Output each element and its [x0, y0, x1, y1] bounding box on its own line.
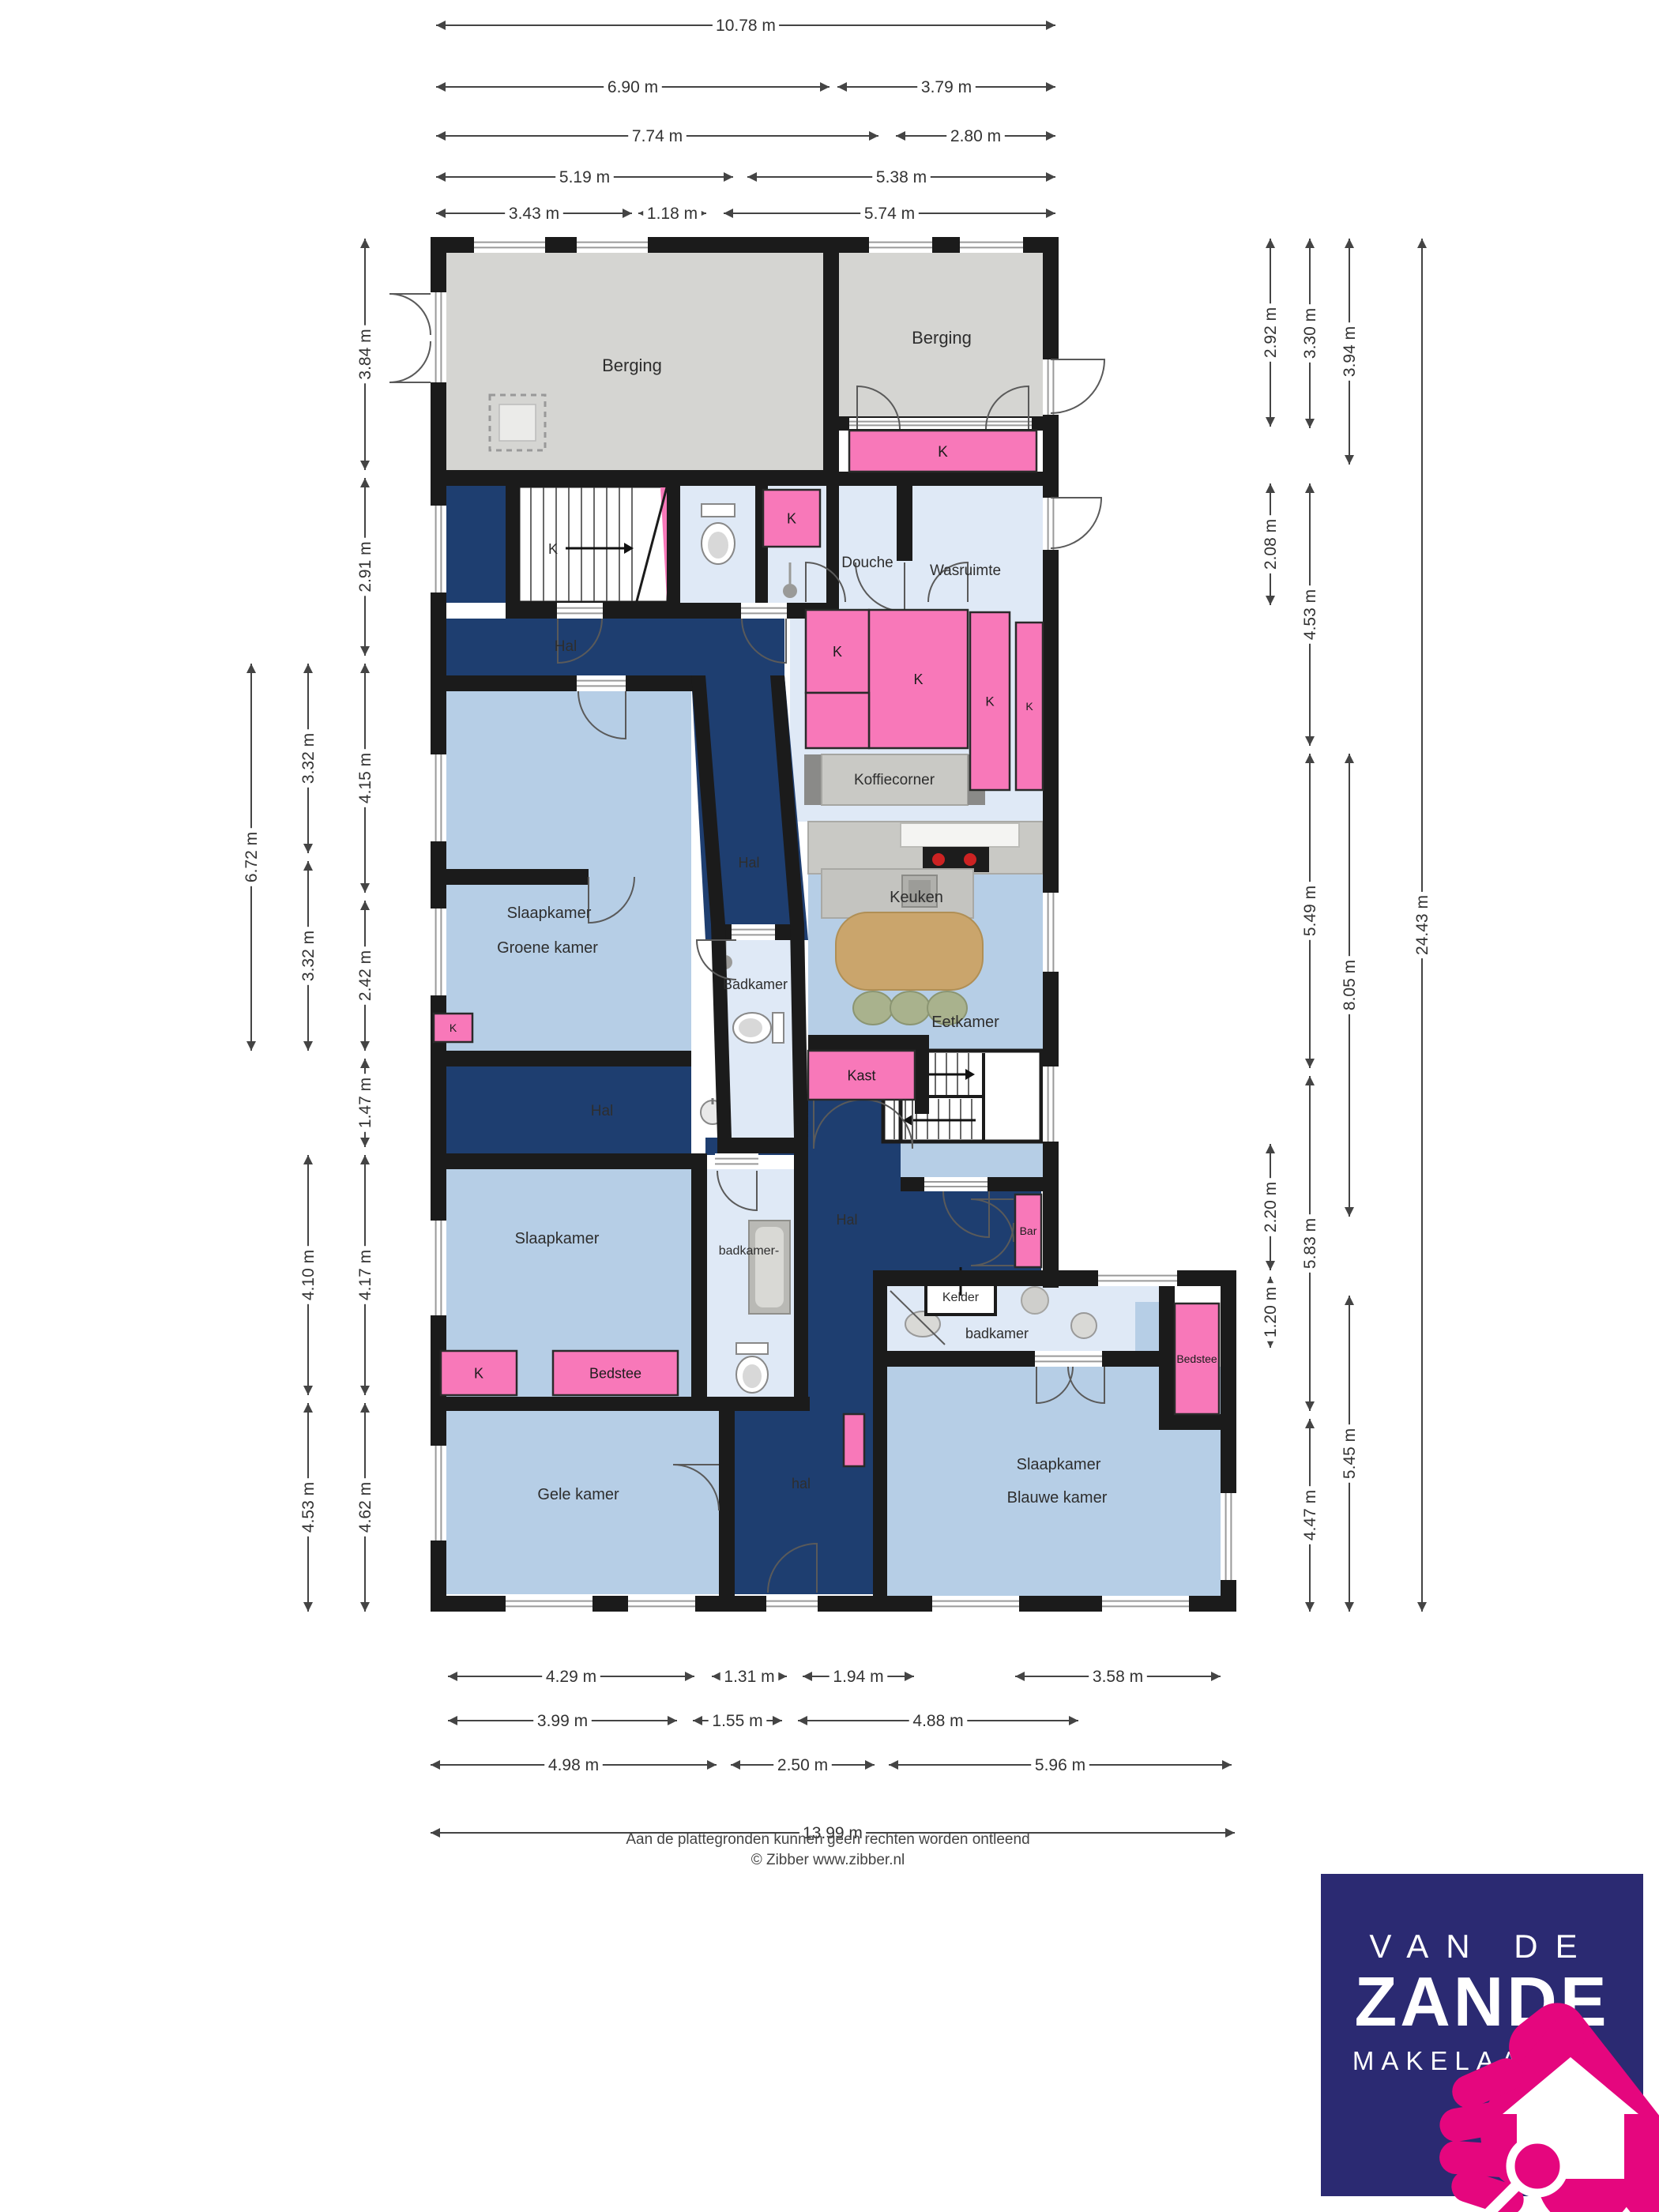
wall-segment	[897, 486, 912, 561]
dim-label: 7.74 m	[632, 127, 683, 145]
dim-label-group: 4.62 m	[355, 1478, 375, 1537]
dim-arrowhead	[1305, 419, 1315, 428]
dim-label: 5.49 m	[1301, 886, 1319, 936]
dim-arrowhead	[1046, 131, 1055, 141]
cabinet-label: K	[450, 1021, 457, 1034]
dim-label: 5.19 m	[559, 168, 610, 186]
dim-arrowhead	[303, 861, 313, 871]
wall-segment	[823, 472, 1059, 486]
wall-segment	[1159, 1286, 1175, 1430]
dim-arrowhead	[1046, 172, 1055, 182]
dim-arrowhead	[1266, 239, 1275, 248]
dim-label-group: 3.94 m	[1339, 322, 1360, 381]
dim-arrowhead	[668, 1716, 677, 1725]
dim-arrowhead	[1305, 239, 1315, 248]
room-label: Berging	[602, 355, 662, 375]
dim-arrowhead	[360, 461, 370, 470]
dim-arrowhead	[303, 1386, 313, 1395]
dim-arrowhead	[837, 82, 847, 92]
dim-arrowhead	[360, 478, 370, 487]
dim-label-group: 4.15 m	[355, 749, 375, 807]
bathtub-icon	[749, 1221, 790, 1314]
wood-table-icon	[836, 912, 983, 990]
dim-label: 5.45 m	[1341, 1428, 1359, 1479]
dim-label: 1.31 m	[724, 1668, 774, 1686]
door-arc	[389, 294, 431, 335]
dim-arrowhead	[1069, 1716, 1078, 1725]
cabinet-label: K	[913, 671, 923, 687]
window	[732, 924, 775, 940]
dim-arrowhead	[773, 1716, 782, 1725]
cabinet-label: Bar	[1020, 1224, 1037, 1237]
room-floor	[446, 1051, 691, 1169]
room-label: Douche	[841, 555, 893, 571]
dim-arrowhead	[360, 901, 370, 910]
window	[715, 1153, 758, 1169]
dim-label: 6.90 m	[608, 78, 658, 96]
cabinet-label: K	[985, 694, 995, 709]
cabinet-label: Kast	[847, 1067, 875, 1083]
room-label: Hal	[591, 1103, 614, 1119]
agency-logo: VAN DE ZANDE MAKELAARDIJ	[1321, 1874, 1659, 2212]
dim-label: 3.79 m	[921, 78, 972, 96]
room-label: Kelder	[942, 1291, 980, 1304]
chair-icon	[890, 991, 930, 1025]
dim-label: 3.30 m	[1301, 308, 1319, 359]
dim-label-group: 5.45 m	[1339, 1424, 1360, 1483]
cabinet-label: K	[787, 510, 796, 526]
window	[1102, 1596, 1189, 1612]
room-label: Slaapkamer	[1017, 1456, 1101, 1473]
dim-label: 3.84 m	[356, 329, 374, 379]
room-label: Hal	[555, 638, 577, 655]
toilet-icon	[736, 1343, 768, 1393]
dim-arrowhead	[436, 82, 446, 92]
cabinet-label: Bedstee	[589, 1365, 641, 1381]
dim-label: 4.62 m	[356, 1482, 374, 1533]
dim-label: 5.38 m	[876, 168, 927, 186]
dim-label-group: 1.47 m	[355, 1074, 375, 1132]
room-floor	[446, 619, 784, 675]
window	[1043, 1066, 1059, 1142]
dim-arrowhead	[436, 172, 446, 182]
dim-arrowhead	[303, 1155, 313, 1164]
wall-segment	[506, 603, 839, 619]
dim-arrowhead	[1225, 1828, 1235, 1838]
dim-label: 1.55 m	[712, 1712, 762, 1730]
dim-arrowhead	[360, 1386, 370, 1395]
dim-label: 4.98 m	[548, 1756, 599, 1774]
room-label: Gele kamer	[537, 1486, 619, 1503]
dim-arrowhead	[1211, 1672, 1221, 1681]
dim-label: 2.42 m	[356, 950, 374, 1001]
dim-arrowhead	[360, 646, 370, 656]
wall-segment	[431, 675, 703, 691]
window	[577, 675, 626, 691]
wall-segment	[431, 869, 589, 885]
dim-label-group: 3.30 m	[1300, 304, 1320, 363]
dim-arrowhead	[1305, 1059, 1315, 1068]
dim-label-group: 2.20 m	[1260, 1178, 1281, 1236]
cabinet	[806, 693, 869, 748]
dim-arrowhead	[1305, 1401, 1315, 1411]
window	[557, 603, 603, 619]
wall-segment	[1159, 1414, 1221, 1430]
window	[506, 1596, 592, 1612]
window	[1221, 1493, 1236, 1580]
dim-arrowhead	[693, 1716, 702, 1725]
cabinet-label: Bedstee	[1176, 1352, 1217, 1365]
wall-segment	[668, 486, 680, 603]
wall-segment	[719, 1411, 735, 1596]
window	[741, 603, 787, 619]
dim-arrowhead	[1266, 1261, 1275, 1270]
dim-arrowhead	[865, 1760, 875, 1770]
wall-segment	[431, 1153, 691, 1169]
wall-segment	[691, 1153, 707, 1406]
dim-label: 4.88 m	[912, 1712, 963, 1730]
dim-arrowhead	[360, 1403, 370, 1413]
dim-arrowhead	[360, 1138, 370, 1147]
dim-label: 4.29 m	[546, 1668, 596, 1686]
dim-label: 2.50 m	[777, 1756, 828, 1774]
dim-arrowhead	[798, 1716, 807, 1725]
wall-segment	[808, 1035, 929, 1051]
dim-arrowhead	[1266, 417, 1275, 427]
dim-arrowhead	[436, 21, 446, 30]
dim-arrowhead	[731, 1760, 740, 1770]
dim-label-group: 5.49 m	[1300, 882, 1320, 940]
dim-label-group: 2.91 m	[355, 538, 375, 596]
dim-arrowhead	[1345, 455, 1354, 465]
dim-arrowhead	[246, 1041, 256, 1051]
dim-arrowhead	[431, 1828, 440, 1838]
window	[1043, 498, 1059, 550]
dim-label: 5.74 m	[864, 205, 915, 223]
dim-label-group: 24.43 m	[1412, 892, 1432, 958]
cabinet	[844, 1414, 864, 1466]
door-arc	[389, 341, 431, 382]
dim-label: 2.80 m	[950, 127, 1001, 145]
dim-arrowhead	[360, 1041, 370, 1051]
dim-label: 2.92 m	[1262, 307, 1280, 358]
dim-label: 1.47 m	[356, 1078, 374, 1128]
dim-label-group: 3.32 m	[298, 927, 318, 985]
footer-disclaimer: Aan de plattegronden kunnen geen rechten…	[626, 1831, 1029, 1848]
wall-segment	[717, 1138, 808, 1153]
room-floor	[446, 486, 506, 603]
chair-icon	[853, 991, 893, 1025]
dim-arrowhead	[1266, 1144, 1275, 1153]
dim-arrowhead	[1345, 1296, 1354, 1305]
room-label: hal	[792, 1476, 811, 1492]
dim-label-group: 4.47 m	[1300, 1486, 1320, 1544]
dim-arrowhead	[360, 883, 370, 893]
room-label: Hal	[836, 1212, 857, 1228]
window	[431, 1446, 446, 1540]
dim-arrowhead	[1345, 754, 1354, 763]
window	[932, 1596, 1019, 1612]
cabinet-label: K	[938, 444, 948, 461]
window	[577, 237, 648, 253]
cabinet-label: K	[1025, 700, 1033, 713]
dim-arrowhead	[1305, 1076, 1315, 1085]
dim-arrowhead	[1046, 209, 1055, 218]
dim-arrowhead	[360, 1155, 370, 1164]
dim-arrowhead	[1266, 596, 1275, 605]
dim-label-group: 4.53 m	[1300, 585, 1320, 644]
dim-label: 3.99 m	[537, 1712, 588, 1730]
dim-arrowhead	[1222, 1760, 1232, 1770]
dim-arrowhead	[1305, 1602, 1315, 1612]
dim-label-group: 4.17 m	[355, 1246, 375, 1304]
floorplan-canvas: KKKKKKKastBarKKBedsteeBedstee BergingBer…	[0, 0, 1659, 2212]
wall-segment	[887, 1351, 1159, 1367]
dim-label: 4.47 m	[1301, 1490, 1319, 1540]
dim-arrowhead	[1015, 1672, 1025, 1681]
dim-arrowhead	[724, 209, 733, 218]
dim-label-group: 5.83 m	[1300, 1214, 1320, 1273]
dim-arrowhead	[1305, 483, 1315, 493]
window	[431, 754, 446, 841]
dim-arrowhead	[360, 1059, 370, 1068]
dim-label-group: 2.92 m	[1260, 303, 1281, 362]
dim-arrowhead	[1417, 1602, 1427, 1612]
window	[431, 292, 446, 382]
dim-label: 1.94 m	[833, 1668, 883, 1686]
cabinet-label: K	[474, 1365, 483, 1381]
dim-arrowhead	[1345, 1602, 1354, 1612]
room-label: Hal	[738, 855, 759, 871]
room-label: Keuken	[890, 889, 943, 906]
room-label: badkamer	[965, 1326, 1029, 1341]
dim-label-group: 2.08 m	[1260, 515, 1281, 574]
dim-arrowhead	[707, 1760, 717, 1770]
dim-label: 10.78 m	[716, 17, 776, 35]
wall-segment	[915, 1035, 929, 1114]
dim-label: 3.94 m	[1341, 326, 1359, 377]
window	[474, 237, 545, 253]
dim-label: 4.15 m	[356, 753, 374, 803]
dim-arrowhead	[1345, 239, 1354, 248]
room-label: Slaapkamer	[507, 905, 592, 922]
dim-label-group: 3.84 m	[355, 325, 375, 384]
dim-arrowhead	[360, 239, 370, 248]
dim-arrowhead	[436, 131, 446, 141]
cabinet-label: K	[833, 644, 842, 660]
window	[431, 506, 446, 592]
room-label: Berging	[912, 328, 972, 348]
stairs-top	[518, 486, 668, 603]
room-label: Badkamer	[723, 976, 788, 992]
dim-arrowhead	[896, 131, 905, 141]
floorplan-page: KKKKKKKastBarKKBedsteeBedstee BergingBer…	[0, 0, 1659, 2212]
dim-arrowhead	[303, 1602, 313, 1612]
dim-arrowhead	[1305, 1419, 1315, 1428]
footer-copyright: © Zibber www.zibber.nl	[751, 1852, 905, 1868]
dim-label-group: 4.10 m	[298, 1246, 318, 1304]
dim-label: 3.43 m	[509, 205, 559, 223]
window	[431, 1221, 446, 1315]
dim-label: 5.96 m	[1035, 1756, 1085, 1774]
dim-arrowhead	[246, 664, 256, 673]
window	[766, 1596, 818, 1612]
dim-label: 3.32 m	[299, 931, 318, 981]
dim-arrowhead	[623, 209, 632, 218]
room-floor	[1175, 1430, 1221, 1594]
wall-segment	[506, 486, 518, 603]
dim-label: 6.72 m	[243, 832, 261, 882]
dim-label: 4.10 m	[299, 1250, 318, 1300]
dim-arrowhead	[820, 82, 829, 92]
wall-segment	[431, 1051, 691, 1066]
dim-arrowhead	[1417, 239, 1427, 248]
footer: Aan de plattegronden kunnen geen rechten…	[626, 1831, 1029, 1868]
dim-arrowhead	[448, 1716, 457, 1725]
dim-label: 2.08 m	[1262, 519, 1280, 570]
dim-label: 2.20 m	[1262, 1182, 1280, 1232]
wall-segment	[826, 486, 839, 603]
window	[849, 418, 1032, 429]
dim-label: 1.20 m	[1262, 1287, 1280, 1337]
room-label: K	[548, 541, 558, 557]
window	[1043, 359, 1059, 415]
room-label: Blauwe kamer	[1007, 1489, 1108, 1507]
window	[628, 1596, 695, 1612]
room-label: badkamer-	[719, 1244, 779, 1258]
door-arc	[1051, 359, 1104, 413]
window	[1035, 1351, 1102, 1367]
dim-arrowhead	[431, 1760, 440, 1770]
dim-label-group: 6.72 m	[241, 828, 261, 886]
room-label: Groene kamer	[497, 939, 598, 957]
room-label: Slaapkamer	[515, 1230, 600, 1247]
toilet-icon	[733, 1013, 784, 1043]
dim-arrowhead	[1266, 483, 1275, 493]
dim-arrowhead	[869, 131, 878, 141]
dim-label-group: 8.05 m	[1339, 956, 1360, 1014]
dim-arrowhead	[436, 209, 446, 218]
dim-arrowhead	[1305, 736, 1315, 746]
room-label: Koffiecorner	[854, 772, 935, 788]
dim-label: 1.18 m	[647, 205, 698, 223]
dim-arrowhead	[1046, 21, 1055, 30]
toilet-icon	[702, 504, 735, 564]
wall-segment	[431, 470, 839, 486]
dim-label: 4.17 m	[356, 1250, 374, 1300]
dim-arrowhead	[1046, 82, 1055, 92]
dim-arrowhead	[747, 172, 757, 182]
wall-segment	[431, 1397, 810, 1411]
dim-arrowhead	[360, 1602, 370, 1612]
dim-arrowhead	[1305, 754, 1315, 763]
dim-arrowhead	[889, 1760, 898, 1770]
dim-arrowhead	[712, 1672, 721, 1681]
window	[869, 237, 932, 253]
dim-label: 4.53 m	[299, 1482, 318, 1533]
logo-line-1: VAN DE	[1369, 1928, 1594, 1965]
dim-label-group: 4.53 m	[298, 1478, 318, 1537]
dim-label-group: 3.32 m	[298, 729, 318, 788]
window	[431, 908, 446, 995]
room-floor	[808, 1286, 873, 1411]
wall-segment	[823, 237, 839, 486]
dim-label: 3.58 m	[1093, 1668, 1143, 1686]
wall-segment	[873, 1270, 1236, 1286]
dim-arrowhead	[777, 1672, 787, 1681]
dim-arrowhead	[303, 1041, 313, 1051]
dim-arrowhead	[724, 172, 733, 182]
dim-label: 2.91 m	[356, 541, 374, 592]
dim-arrowhead	[1345, 1207, 1354, 1217]
dim-label: 8.05 m	[1341, 960, 1359, 1010]
dim-arrowhead	[303, 664, 313, 673]
dim-arrowhead	[685, 1672, 694, 1681]
room-label: Wasruimte	[930, 562, 1001, 579]
dim-arrowhead	[303, 844, 313, 853]
window	[924, 1177, 987, 1191]
dim-label: 5.83 m	[1301, 1218, 1319, 1269]
window	[960, 237, 1023, 253]
dim-label-group: 1.20 m	[1260, 1283, 1281, 1341]
dim-arrowhead	[905, 1672, 914, 1681]
dim-arrowhead	[448, 1672, 457, 1681]
dim-label: 24.43 m	[1413, 895, 1431, 955]
dim-label-group: 2.42 m	[355, 946, 375, 1005]
window	[1098, 1270, 1177, 1286]
dim-arrowhead	[303, 1403, 313, 1413]
dim-arrowhead	[803, 1672, 812, 1681]
dim-arrowhead	[360, 664, 370, 673]
wall-segment	[873, 1286, 887, 1596]
dim-label: 4.53 m	[1301, 589, 1319, 640]
window	[1043, 893, 1059, 972]
dim-label: 3.32 m	[299, 733, 318, 784]
room-label: Eetkamer	[931, 1014, 999, 1031]
kitchen-counter	[808, 822, 1043, 874]
